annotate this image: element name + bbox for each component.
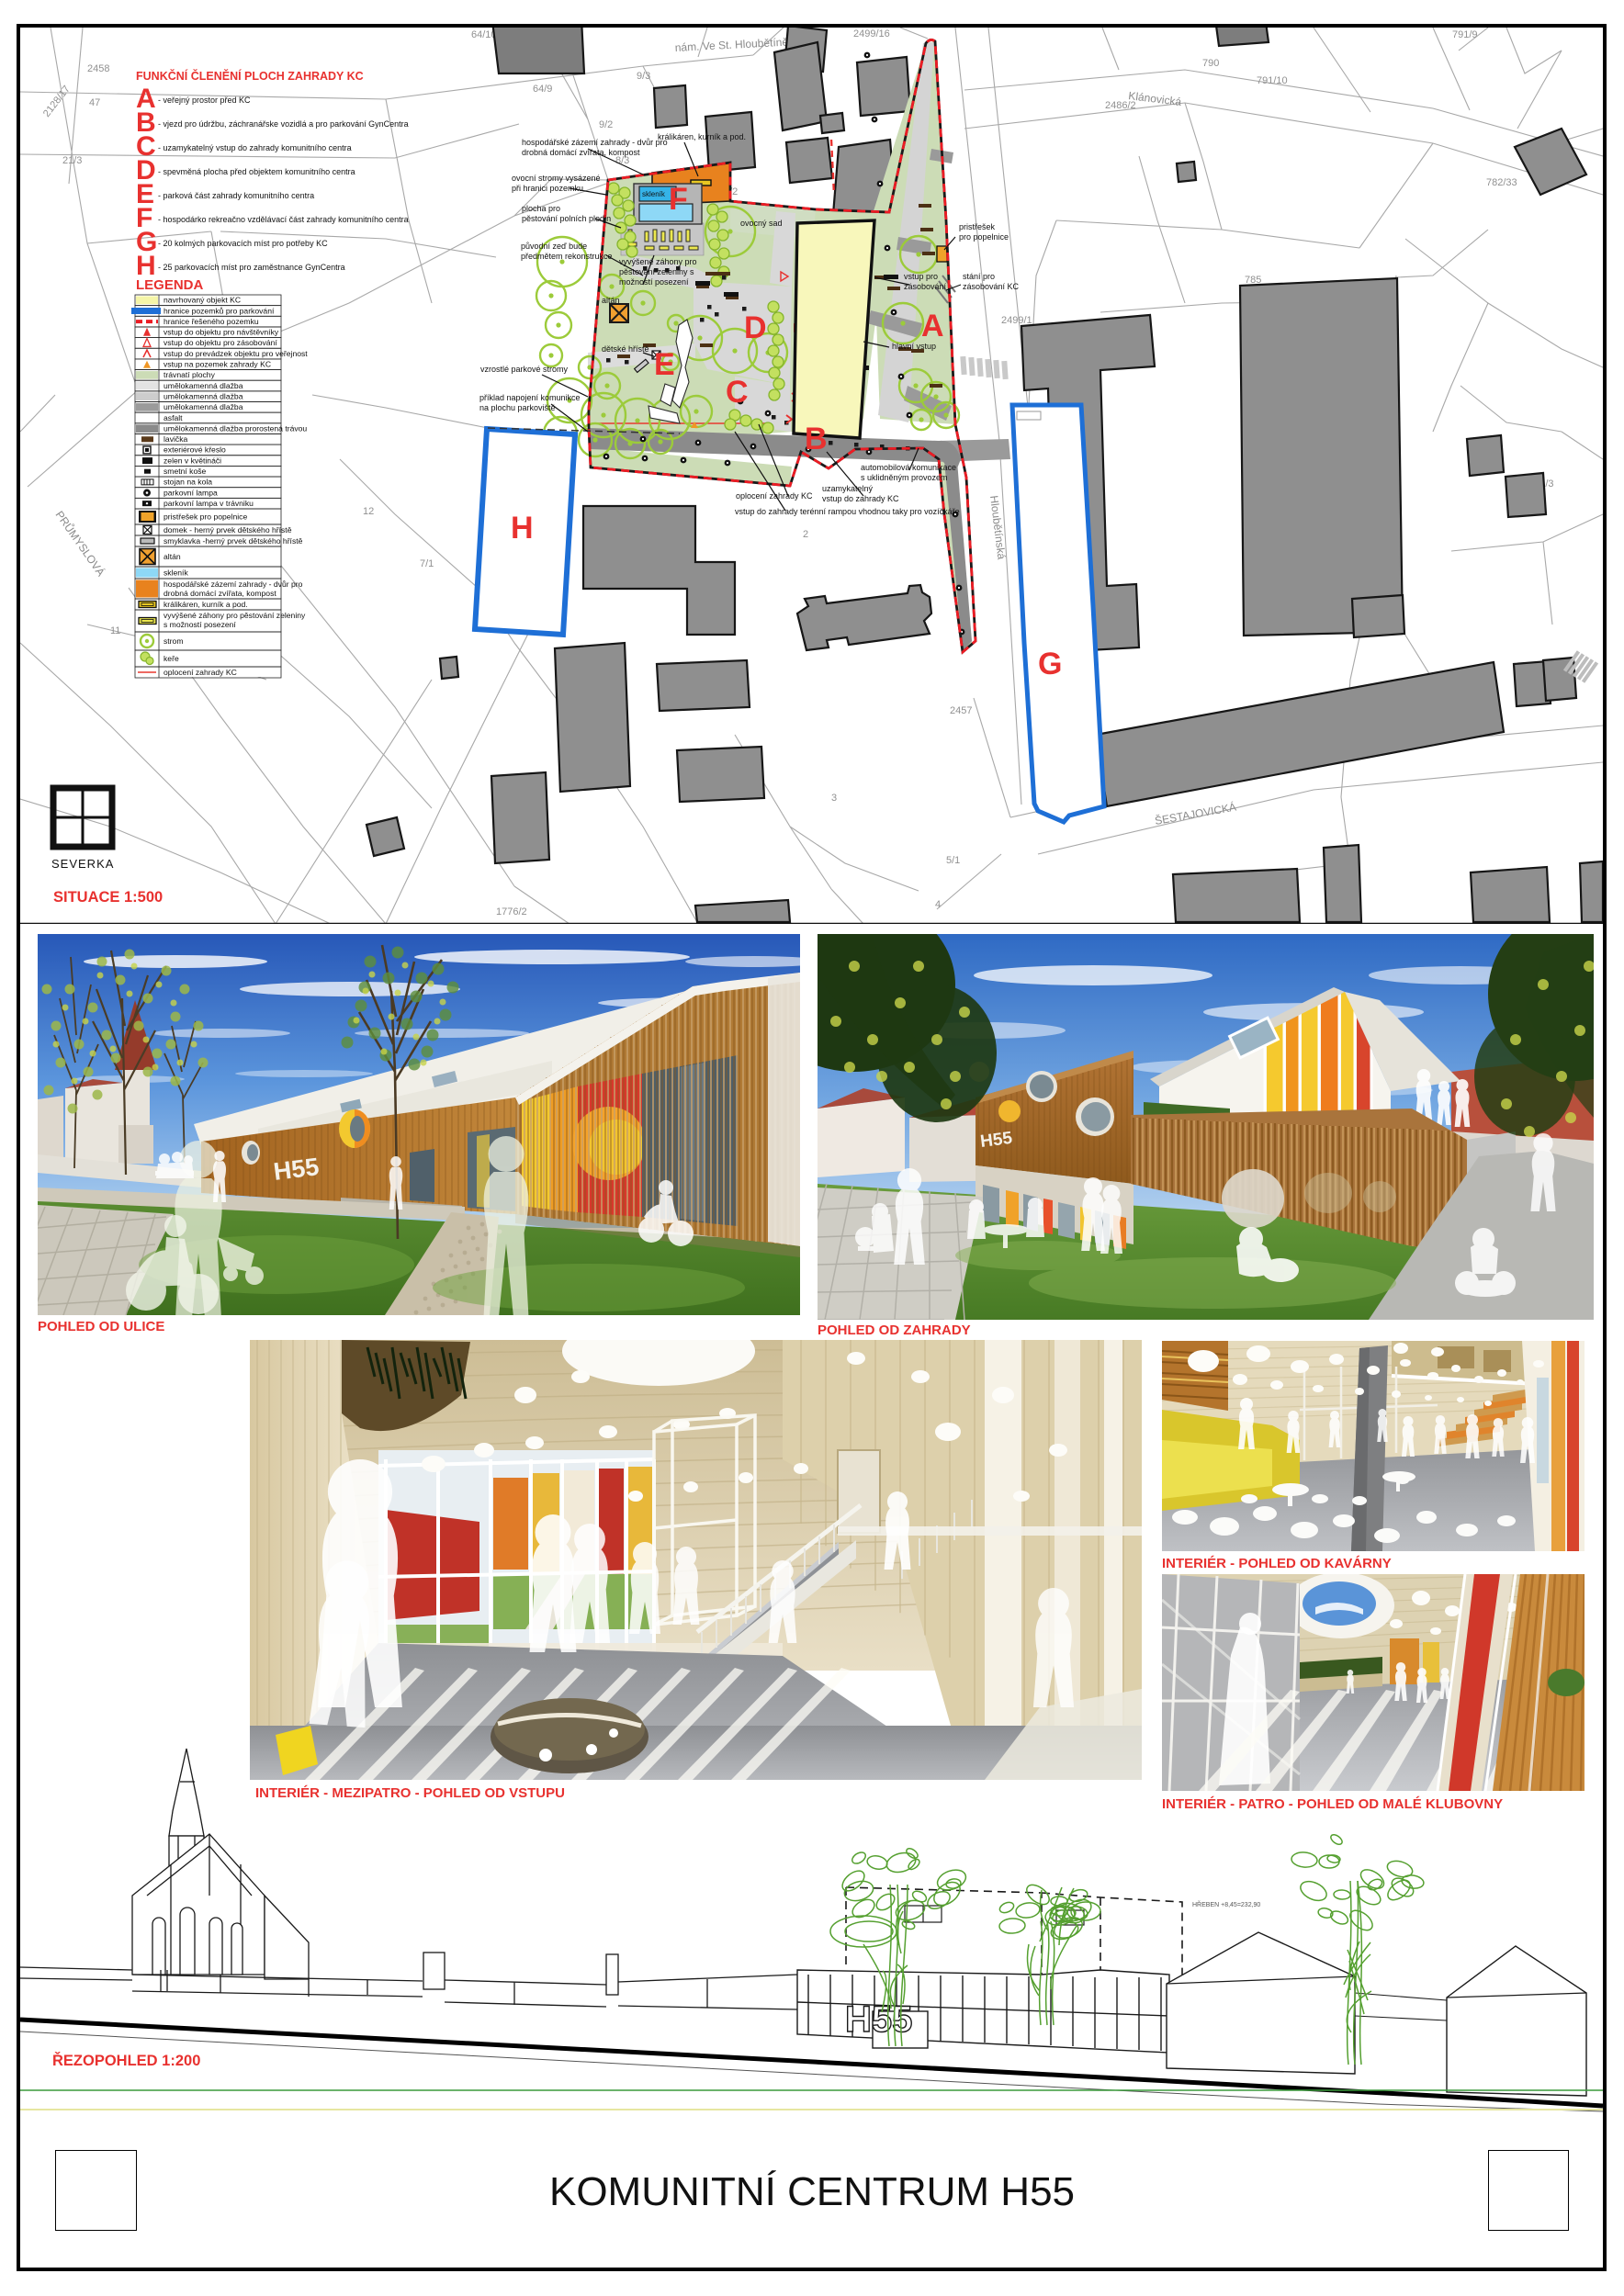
svg-text:2499/1: 2499/1 xyxy=(1001,315,1032,326)
svg-text:ŘEZOPOHLED 1:200: ŘEZOPOHLED 1:200 xyxy=(52,2052,200,2069)
svg-text:exteriérové křeslo: exteriérové křeslo xyxy=(164,445,226,455)
svg-text:ŠESTAJOVICKÁ: ŠESTAJOVICKÁ xyxy=(1154,800,1237,827)
svg-text:altán: altán xyxy=(602,296,620,305)
svg-text:s uklidněným provozem: s uklidněným provozem xyxy=(861,473,948,482)
svg-text:791/9: 791/9 xyxy=(1452,29,1478,40)
svg-text:2: 2 xyxy=(803,529,808,540)
svg-text:příklad napojení komunikce: příklad napojení komunikce xyxy=(479,393,581,402)
svg-text:hospodářské zázemí zahrady - d: hospodářské zázemí zahrady - dvůr pro xyxy=(522,138,668,147)
svg-text:vstup na pozemek zahrady KC: vstup na pozemek zahrady KC xyxy=(164,360,271,369)
svg-text:umělokamenná dlažba: umělokamenná dlažba xyxy=(164,381,243,390)
svg-text:PRŮMYSLOVÁ: PRŮMYSLOVÁ xyxy=(53,508,108,579)
svg-text:vstup pro: vstup pro xyxy=(904,272,938,281)
svg-text:7/1: 7/1 xyxy=(420,558,434,569)
svg-text:9/2: 9/2 xyxy=(599,119,613,130)
svg-text:ovocný sad: ovocný sad xyxy=(740,219,783,228)
svg-text:drobná domácí zvířata, kompost: drobná domácí zvířata, kompost xyxy=(522,148,640,157)
svg-text:drobná domácí zvířata, kompost: drobná domácí zvířata, kompost xyxy=(164,589,276,598)
svg-text:na plochu parkoviště: na plochu parkoviště xyxy=(479,403,556,412)
svg-text:smetní koše: smetní koše xyxy=(164,467,207,476)
svg-text:domek - herný prvek dětského h: domek - herný prvek dětského hřístě xyxy=(164,525,292,535)
svg-text:H55: H55 xyxy=(979,1129,1014,1152)
svg-text:zásobování: zásobování xyxy=(904,282,947,291)
svg-text:asfalt: asfalt xyxy=(164,413,183,422)
svg-text:H55: H55 xyxy=(845,1999,912,2040)
svg-text:FUNKČNÍ ČLENĚNÍ PLOCH ZAHRADY: FUNKČNÍ ČLENĚNÍ PLOCH ZAHRADY KC xyxy=(136,69,364,83)
svg-text:parkovní lampa v trávniku: parkovní lampa v trávniku xyxy=(164,499,254,508)
svg-text:skleník: skleník xyxy=(164,568,188,578)
svg-text:ovocní stromy vysázené: ovocní stromy vysázené xyxy=(512,174,601,183)
svg-text:- vjezd pro údržbu, záchranářs: - vjezd pro údržbu, záchranářske vozidlá… xyxy=(158,119,409,129)
svg-text:790: 790 xyxy=(1202,58,1219,69)
svg-text:vstup do zahrady terénní rampo: vstup do zahrady terénní rampou vhodnou … xyxy=(735,507,960,516)
svg-text:HŘEBEN +8,45=232,90: HŘEBEN +8,45=232,90 xyxy=(1192,1900,1260,1908)
svg-text:automobilová komunikace: automobilová komunikace xyxy=(861,463,956,472)
svg-text:5/1: 5/1 xyxy=(946,855,960,866)
svg-text:B: B xyxy=(805,422,828,456)
svg-text:skleník: skleník xyxy=(642,190,666,198)
svg-text:F: F xyxy=(669,182,688,217)
svg-text:- veřejný prostor před KC: - veřejný prostor před KC xyxy=(158,96,251,105)
svg-text:hranice řešeného pozemku: hranice řešeného pozemku xyxy=(164,317,259,326)
svg-text:nám. Ve St. Hloubětíně: nám. Ve St. Hloubětíně xyxy=(674,36,788,54)
svg-text:A: A xyxy=(921,309,944,343)
svg-text:2458: 2458 xyxy=(87,63,109,74)
svg-text:vstup do zahrady KC: vstup do zahrady KC xyxy=(822,494,899,503)
svg-text:vyvýšené záhony pro: vyvýšené záhony pro xyxy=(619,257,697,266)
svg-text:782/33: 782/33 xyxy=(1486,177,1517,188)
svg-text:vstup do prevádzek objektu pro: vstup do prevádzek objektu pro veřejnost xyxy=(164,349,308,358)
svg-text:zelen v květináči: zelen v květináči xyxy=(164,456,221,465)
svg-text:keře: keře xyxy=(164,654,179,663)
svg-text:vstup do objektu pro návštěvní: vstup do objektu pro návštěvníky xyxy=(164,328,279,337)
svg-text:21/3: 21/3 xyxy=(62,155,82,166)
svg-text:pěstování polních plodin: pěstování polních plodin xyxy=(522,214,611,223)
svg-text:uzamykatelný: uzamykatelný xyxy=(822,484,874,493)
svg-text:hranice pozemků pro parkování: hranice pozemků pro parkování xyxy=(164,306,275,315)
svg-text:smyklavka -herný prvek dětskéh: smyklavka -herný prvek dětského hřístě xyxy=(164,536,303,546)
svg-text:64/9: 64/9 xyxy=(533,84,552,95)
svg-text:králikáren, kurník a pod.: králikáren, kurník a pod. xyxy=(164,600,248,609)
svg-text:vstup do objektu pro zásobován: vstup do objektu pro zásobování xyxy=(164,338,277,347)
svg-text:hlavní vstup: hlavní vstup xyxy=(892,342,936,351)
svg-text:králikáren, kurník a pod.: králikáren, kurník a pod. xyxy=(658,132,746,141)
svg-text:SITUACE 1:500: SITUACE 1:500 xyxy=(53,889,163,906)
svg-text:Hloubětínská: Hloubětínská xyxy=(987,495,1008,561)
svg-text:2457: 2457 xyxy=(950,705,972,716)
svg-text:- 20 kolmých parkovacích míst: - 20 kolmých parkovacích míst pro potřeb… xyxy=(158,239,328,248)
svg-text:SEVERKA: SEVERKA xyxy=(51,857,114,871)
svg-text:E: E xyxy=(654,347,675,382)
svg-text:hospodářské zázemí zahrady - d: hospodářské zázemí zahrady - dvůr pro xyxy=(164,580,303,589)
svg-text:umělokamenná dlažba: umělokamenná dlažba xyxy=(164,402,243,411)
svg-text:umělokamenná dlažba prorostená: umělokamenná dlažba prorostená trávou xyxy=(164,423,307,433)
svg-text:D: D xyxy=(744,310,767,345)
svg-text:pristřešek pro popelnice: pristřešek pro popelnice xyxy=(164,512,247,522)
svg-text:C: C xyxy=(726,375,749,410)
svg-text:3: 3 xyxy=(831,793,837,804)
svg-text:trávnatí plochy: trávnatí plochy xyxy=(164,370,216,379)
svg-text:umělokamenná dlažba: umělokamenná dlažba xyxy=(164,392,243,401)
svg-text:stojan na kola: stojan na kola xyxy=(164,478,212,487)
svg-text:4: 4 xyxy=(935,899,941,910)
svg-text:plocha pro: plocha pro xyxy=(522,204,560,213)
svg-text:G: G xyxy=(1038,647,1062,681)
svg-text:altán: altán xyxy=(164,552,181,561)
svg-text:lavička: lavička xyxy=(164,434,187,444)
svg-text:2499/16: 2499/16 xyxy=(853,28,890,39)
svg-text:strom: strom xyxy=(164,636,183,646)
svg-text:stání pro: stání pro xyxy=(963,272,995,281)
svg-text:12: 12 xyxy=(363,506,374,517)
svg-text:H55: H55 xyxy=(272,1153,321,1186)
svg-text:s možností posezení: s možností posezení xyxy=(164,620,236,629)
svg-text:791/10: 791/10 xyxy=(1257,75,1288,86)
svg-text:- parková část zahrady komunit: - parková část zahrady komunitního centr… xyxy=(158,191,314,200)
svg-text:původní zeď bude: původní zeď bude xyxy=(521,242,587,251)
svg-text:- uzamykatelný vstup do zahrad: - uzamykatelný vstup do zahrady komunitn… xyxy=(158,143,352,152)
svg-text:možností posezení: možností posezení xyxy=(619,277,689,287)
svg-text:zásobování KC: zásobování KC xyxy=(963,282,1020,291)
svg-text:parkovní lampa: parkovní lampa xyxy=(164,488,218,497)
svg-text:navrhovaný objekt KC: navrhovaný objekt KC xyxy=(164,296,241,305)
svg-text:9/3: 9/3 xyxy=(637,71,650,82)
svg-text:- 25 parkovacích míst pro zamě: - 25 parkovacích míst pro zaměstnance Gy… xyxy=(158,263,345,272)
svg-text:11: 11 xyxy=(110,625,120,636)
svg-text:vyvýšené záhony pro pěstování: vyvýšené záhony pro pěstování zeleniny xyxy=(164,611,306,620)
svg-text:oplocení zahrady KC: oplocení zahrady KC xyxy=(164,668,237,677)
svg-text:H: H xyxy=(511,511,534,546)
svg-text:pro popelnice: pro popelnice xyxy=(959,232,1009,242)
svg-text:- spevměná plocha před objekte: - spevměná plocha před objektem komunitn… xyxy=(158,167,355,176)
svg-text:předmětem rekonstrukce: předmětem rekonstrukce xyxy=(521,252,613,261)
svg-text:LEGENDA: LEGENDA xyxy=(136,277,204,293)
svg-text:vzrostlé parkové stromy: vzrostlé parkové stromy xyxy=(480,365,569,374)
svg-text:47: 47 xyxy=(89,97,100,108)
svg-text:pristřešek: pristřešek xyxy=(959,222,996,231)
svg-text:2128/17: 2128/17 xyxy=(41,84,73,119)
svg-text:- hospodárko rekreačno vzděláv: - hospodárko rekreačno vzdělávací část z… xyxy=(158,215,409,224)
svg-text:dětské hřístě: dětské hřístě xyxy=(602,344,649,354)
svg-text:1776/2: 1776/2 xyxy=(496,906,527,917)
